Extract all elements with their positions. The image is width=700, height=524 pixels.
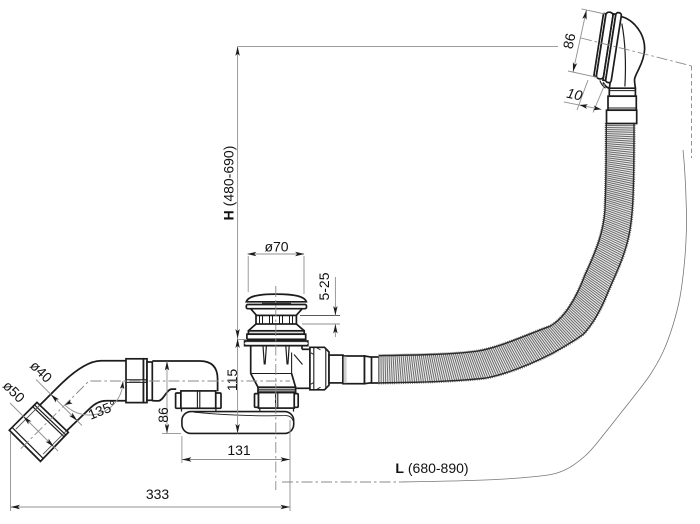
svg-text:115: 115	[224, 369, 240, 392]
svg-text:333: 333	[146, 486, 170, 502]
svg-text:ø70: ø70	[264, 239, 288, 255]
svg-text:131: 131	[227, 442, 251, 458]
svg-text:5-25: 5-25	[316, 272, 332, 300]
svg-text:H (480-690): H (480-690)	[221, 146, 237, 221]
svg-text:86: 86	[155, 407, 171, 423]
svg-text:L (680-890): L (680-890)	[395, 460, 468, 476]
